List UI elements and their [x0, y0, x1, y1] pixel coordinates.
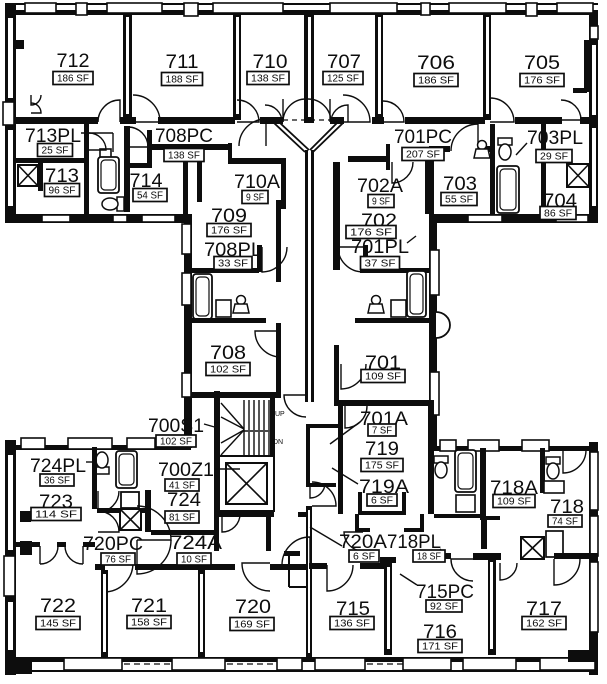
svg-text:7 SF: 7 SF: [372, 426, 392, 437]
svg-text:25 SF: 25 SF: [42, 146, 69, 157]
svg-text:109 SF: 109 SF: [497, 497, 531, 508]
svg-text:186 SF: 186 SF: [57, 74, 89, 85]
svg-text:92 SF: 92 SF: [430, 602, 458, 613]
svg-text:158 SF: 158 SF: [131, 618, 167, 629]
svg-text:102 SF: 102 SF: [210, 365, 246, 376]
svg-text:700S1: 700S1: [148, 416, 204, 437]
svg-text:10 SF: 10 SF: [181, 555, 207, 566]
svg-text:138 SF: 138 SF: [168, 151, 200, 162]
svg-text:9 SF: 9 SF: [372, 197, 390, 208]
svg-text:DN: DN: [273, 439, 283, 446]
svg-text:186 SF: 186 SF: [418, 76, 454, 87]
svg-text:29 SF: 29 SF: [540, 152, 568, 163]
svg-text:125 SF: 125 SF: [327, 74, 359, 85]
svg-text:712: 712: [57, 51, 90, 72]
svg-text:721: 721: [131, 596, 167, 617]
svg-text:109 SF: 109 SF: [365, 372, 401, 383]
svg-text:76 SF: 76 SF: [105, 555, 131, 566]
svg-text:708PC: 708PC: [155, 126, 213, 147]
svg-text:169 SF: 169 SF: [234, 620, 270, 631]
svg-text:707: 707: [327, 52, 361, 73]
svg-text:711: 711: [166, 52, 199, 73]
svg-text:74 SF: 74 SF: [552, 517, 578, 528]
svg-text:96 SF: 96 SF: [49, 186, 76, 197]
svg-text:36 SF: 36 SF: [44, 476, 70, 487]
svg-text:710: 710: [253, 52, 288, 73]
svg-text:33 SF: 33 SF: [218, 259, 248, 270]
svg-text:86 SF: 86 SF: [544, 209, 572, 220]
svg-text:136 SF: 136 SF: [334, 619, 370, 630]
svg-text:9 SF: 9 SF: [246, 193, 264, 204]
svg-text:171 SF: 171 SF: [422, 642, 458, 653]
svg-text:724: 724: [167, 490, 201, 511]
svg-text:176 SF: 176 SF: [524, 76, 560, 87]
svg-text:701PL: 701PL: [351, 237, 409, 258]
svg-text:720: 720: [235, 597, 271, 618]
svg-text:6 SF: 6 SF: [353, 552, 375, 563]
svg-text:207 SF: 207 SF: [406, 150, 440, 161]
svg-text:81 SF: 81 SF: [169, 513, 195, 524]
svg-text:188 SF: 188 SF: [166, 75, 199, 86]
svg-text:703PL: 703PL: [527, 128, 583, 149]
svg-text:176 SF: 176 SF: [211, 226, 247, 237]
svg-text:18 SF: 18 SF: [417, 552, 441, 563]
svg-text:706: 706: [417, 53, 455, 74]
svg-text:37 SF: 37 SF: [365, 259, 396, 270]
svg-text:102 SF: 102 SF: [160, 437, 192, 448]
svg-text:720PC: 720PC: [83, 534, 143, 555]
svg-text:UP: UP: [275, 411, 285, 418]
svg-text:175 SF: 175 SF: [365, 461, 399, 472]
svg-text:138 SF: 138 SF: [251, 74, 285, 85]
svg-text:724A: 724A: [170, 533, 222, 554]
svg-text:54 SF: 54 SF: [137, 191, 163, 202]
svg-text:700Z1: 700Z1: [158, 460, 214, 481]
svg-text:114 SF: 114 SF: [35, 510, 77, 521]
svg-text:145 SF: 145 SF: [40, 619, 76, 630]
svg-text:722: 722: [40, 596, 76, 617]
svg-text:55 SF: 55 SF: [445, 195, 473, 206]
svg-text:719: 719: [365, 439, 399, 460]
svg-text:6 SF: 6 SF: [371, 496, 393, 507]
svg-text:701PC: 701PC: [394, 127, 452, 148]
svg-text:162 SF: 162 SF: [526, 619, 562, 630]
svg-text:708: 708: [210, 343, 246, 364]
svg-text:705: 705: [524, 53, 560, 74]
